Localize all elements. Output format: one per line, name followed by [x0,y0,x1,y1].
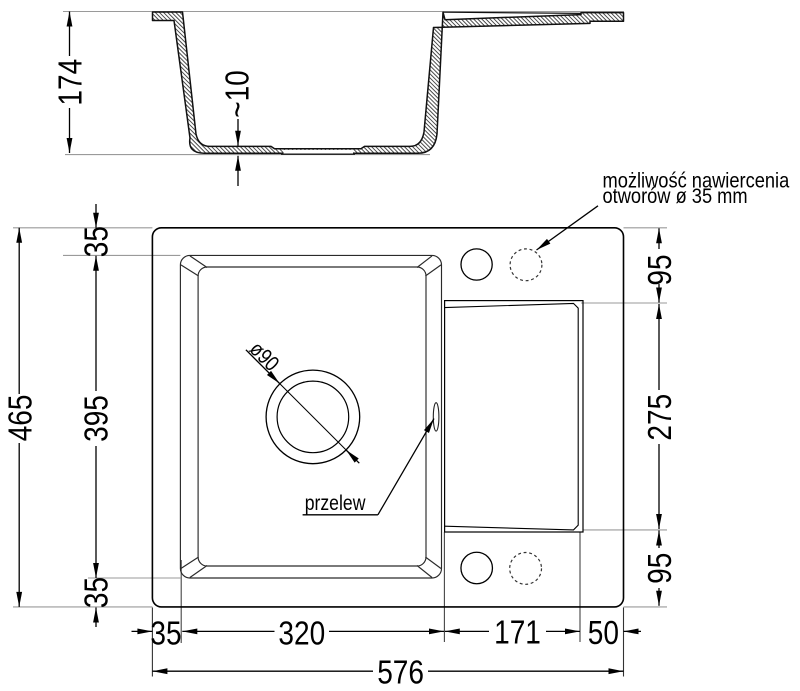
svg-text:50: 50 [588,615,619,652]
svg-text:174: 174 [52,59,89,106]
svg-text:ø90: ø90 [245,337,284,376]
svg-text:35: 35 [78,577,115,608]
svg-text:95: 95 [642,553,679,584]
svg-text:465: 465 [3,395,40,442]
svg-text:35: 35 [78,226,115,257]
svg-text:~10: ~10 [219,70,256,118]
svg-text:35: 35 [150,616,181,653]
svg-text:95: 95 [642,254,679,285]
svg-text:przelew: przelew [305,491,366,515]
svg-text:395: 395 [78,395,115,442]
svg-text:otworów ø 35 mm: otworów ø 35 mm [603,185,748,209]
svg-text:320: 320 [278,616,325,653]
svg-text:576: 576 [377,654,424,691]
svg-text:171: 171 [494,614,541,651]
svg-text:275: 275 [642,394,679,441]
